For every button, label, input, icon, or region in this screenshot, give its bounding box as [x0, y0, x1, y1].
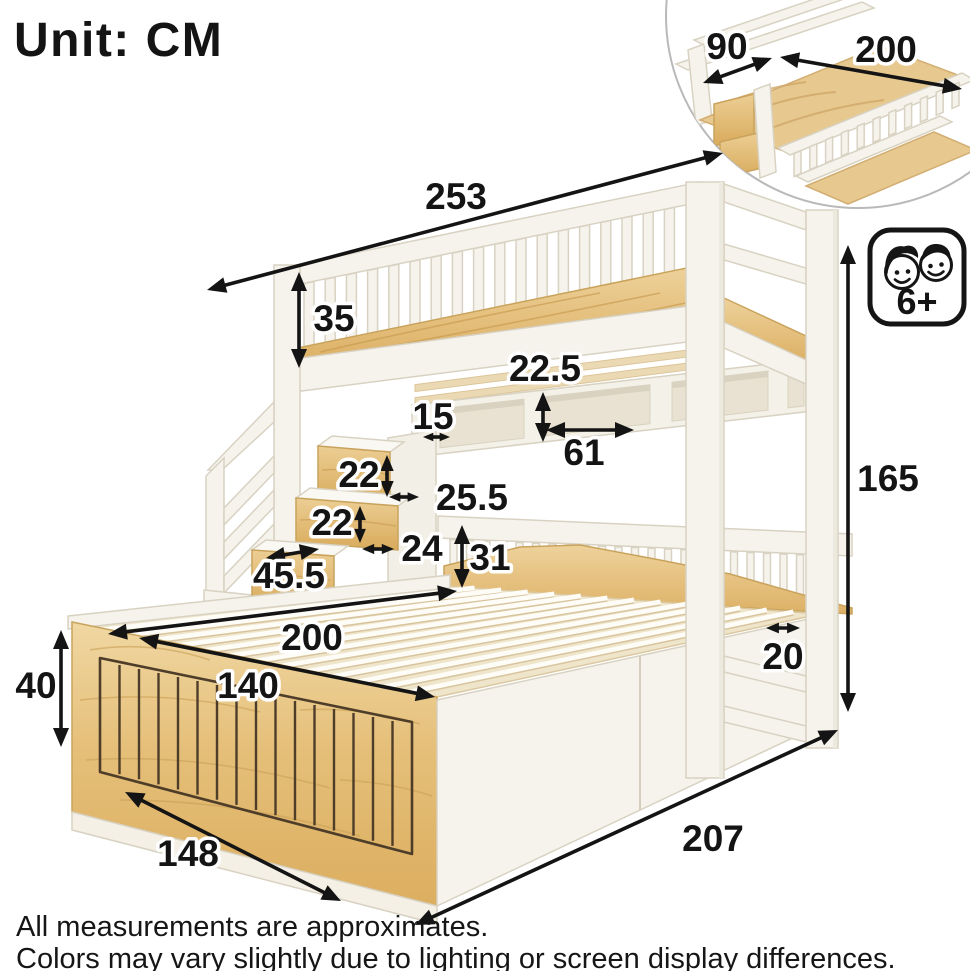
upper-guardrail-slat — [516, 238, 526, 306]
dimension-diagram-page: 253 35 22.5 15 61 22 25.5 22 24 45.5 31 … — [0, 0, 970, 971]
upper-guardrail-slat — [643, 212, 653, 280]
dimension-label-footboard-height: 31 — [469, 537, 510, 578]
stair-handrail — [208, 402, 274, 470]
dimension-label-upper-step-depth: 25.5 — [436, 477, 508, 518]
footboard-slat — [797, 555, 804, 597]
dimension-label-shelf-height: 22.5 — [509, 348, 581, 389]
dimension-label-overall-height: 165 — [857, 458, 919, 499]
upper-guardrail-slat — [537, 234, 547, 302]
upper-guardrail-slat — [410, 260, 420, 328]
arrowhead — [840, 245, 856, 264]
front-right-post — [686, 182, 724, 778]
dimension-label-upper-length: 253 — [425, 176, 487, 217]
dimension-label-front-width: 148 — [157, 833, 219, 874]
upper-guardrail-slat — [622, 216, 632, 284]
upper-guardrail-top-rail — [276, 182, 700, 289]
dimension-label-shelf-width: 61 — [563, 432, 604, 473]
upper-guardrail-slat — [452, 251, 462, 319]
dimension-label-headboard-panel-width: 140 — [217, 665, 279, 706]
dimension-label-post-width: 20 — [762, 636, 803, 677]
dimension-label-lower-step-depth: 24 — [401, 528, 443, 569]
footboard-slat — [780, 554, 787, 592]
upper-guardrail-slat — [431, 255, 441, 323]
dimension-label-lower-step-rise: 22 — [311, 502, 352, 543]
inset-railing-slat — [826, 137, 833, 163]
inset-railing-slat — [920, 96, 927, 122]
bunk-bed-illustration — [68, 182, 852, 924]
dimension-label-headboard-height: 40 — [15, 665, 56, 706]
inset-railing-slat — [905, 103, 912, 129]
end-frame-second-rail — [724, 244, 806, 284]
dimension-label-lower-length: 200 — [281, 617, 343, 658]
inset-railing-slat — [810, 144, 817, 170]
bunk-bed-dimension-diagram: 253 35 22.5 15 61 22 25.5 22 24 45.5 31 … — [0, 0, 970, 971]
upper-guardrail-slat — [664, 207, 674, 275]
age-badge: 6+ — [870, 230, 964, 324]
inset-railing-slat — [889, 110, 896, 136]
inset-railing-slat — [873, 117, 880, 143]
upper-guardrail-slat — [601, 220, 611, 288]
arrowhead — [207, 277, 227, 292]
footboard-slat — [764, 553, 771, 587]
upper-guardrail-slat — [368, 269, 378, 337]
upper-guardrail-slat — [558, 229, 568, 297]
upper-guardrail-slat — [474, 247, 484, 315]
age-badge-label: 6+ — [896, 281, 937, 322]
dimension-label-guardrail-height: 35 — [313, 298, 354, 339]
footnote-measurements: All measurements are approximates. — [16, 911, 488, 943]
arrowhead — [53, 630, 69, 649]
upper-guardrail-slat — [389, 264, 399, 332]
dimension-arrow-overall-height — [840, 245, 856, 712]
stair-railing-post — [206, 458, 224, 604]
unit-title: Unit: CM — [14, 14, 223, 67]
arrowhead — [703, 150, 723, 165]
inset-railing-slat — [857, 123, 864, 149]
dimension-label-overall-depth: 207 — [682, 818, 744, 859]
inset-label-width: 90 — [706, 26, 747, 67]
dimension-label-step-width: 45.5 — [253, 555, 325, 596]
footboard-slat — [747, 552, 754, 583]
upper-guardrail-slat — [495, 242, 505, 310]
inset-railing-slat — [794, 151, 801, 177]
arrowhead — [840, 693, 856, 712]
inset-label-length: 200 — [855, 29, 917, 70]
arrowhead — [53, 728, 69, 747]
footnote-colors: Colors may vary slightly due to lighting… — [16, 943, 896, 971]
dimension-label-upper-step-rise: 22 — [338, 454, 379, 495]
dimension-label-shelf-side-gap: 15 — [412, 396, 453, 437]
inset-railing-slat — [841, 130, 848, 156]
upper-guardrail-slat — [580, 225, 590, 293]
